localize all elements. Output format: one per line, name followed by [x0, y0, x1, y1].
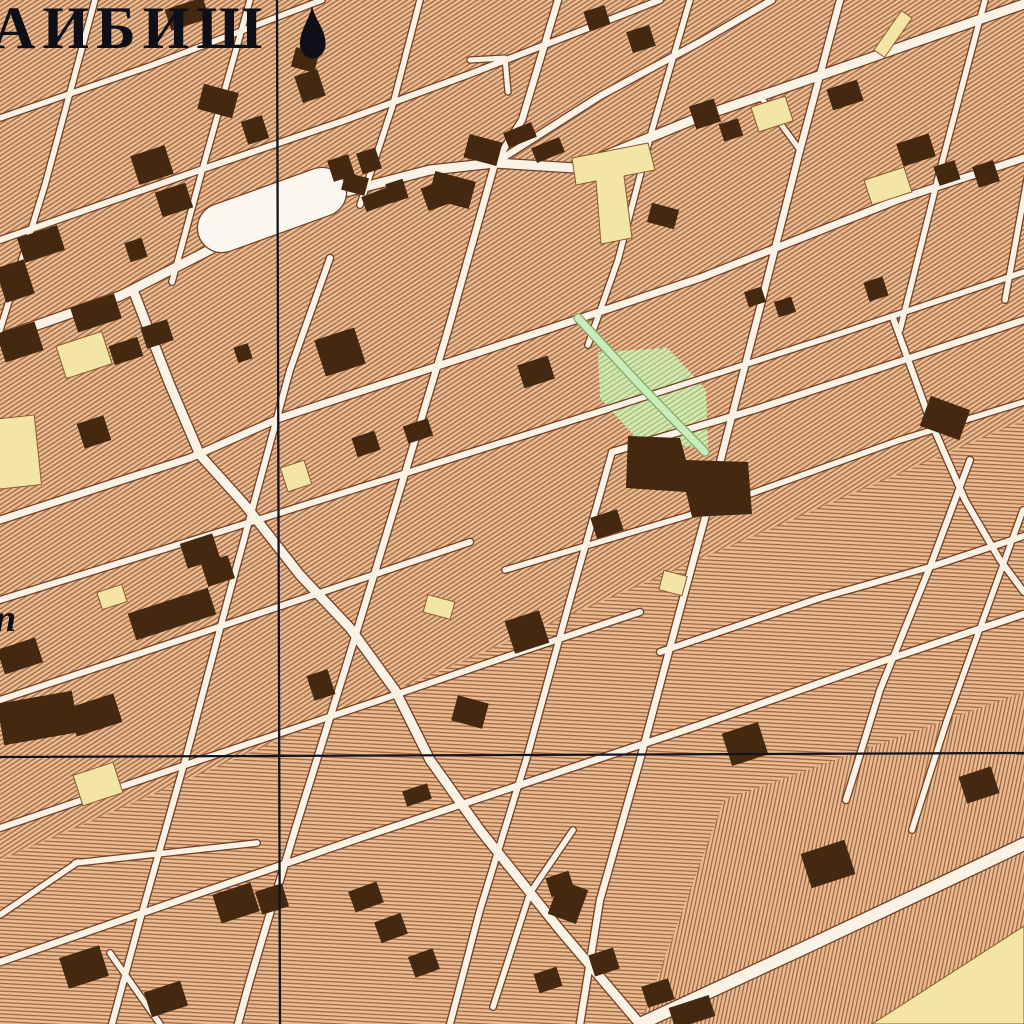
street-name-fragment: п [0, 598, 16, 640]
plaza-layer [222, 192, 322, 228]
map-viewport[interactable]: АИБИШ п [0, 0, 1024, 1024]
plaza [222, 192, 322, 228]
city-name-label: АИБИШ [0, 0, 269, 61]
landmark-building [0, 415, 42, 489]
map-canvas[interactable]: АИБИШ п [0, 0, 1024, 1024]
